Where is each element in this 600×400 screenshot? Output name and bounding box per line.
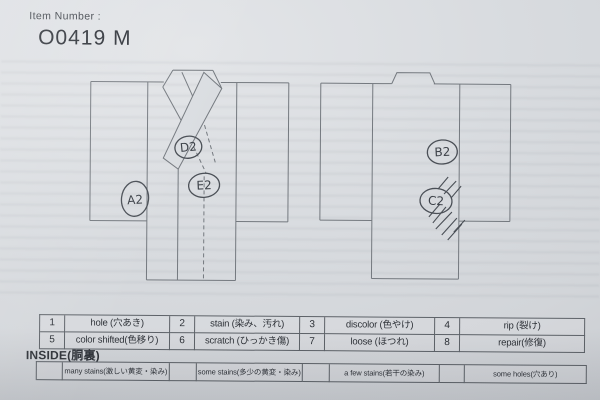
annotation-B2-label: B2: [434, 145, 450, 160]
legend-code-cell: 8: [435, 335, 460, 352]
annotation-C2-label: C2: [428, 194, 445, 209]
annotation-D2-label: D2: [179, 139, 197, 155]
kimono-front-diagram: [89, 70, 288, 281]
legend-label-cell: hole (穴あき): [65, 315, 170, 333]
annotation-C2: C2: [419, 187, 453, 214]
inside-checkbox-cell: [37, 362, 63, 380]
legend-code-cell: 6: [170, 333, 195, 350]
legend-code-cell: 1: [40, 315, 65, 332]
annotation-E2: E2: [187, 172, 221, 199]
inside-checkbox-cell: [440, 365, 465, 383]
legend-code-cell: 4: [435, 318, 460, 335]
annotation-E2-label: E2: [196, 178, 212, 193]
inside-checkbox-cell: [170, 363, 197, 381]
legend-code-cell: 7: [300, 334, 325, 351]
inside-option-label: some holes(穴あり): [465, 365, 587, 384]
damage-hatch-marks: [429, 177, 465, 240]
annotation-A2-label: A2: [127, 192, 144, 207]
defect-legend-table: 1 hole (穴あき) 2 stain (染み、汚れ) 3 discolor …: [39, 314, 585, 353]
inside-checkbox-cell: [303, 364, 330, 382]
inside-option-label: many stains(激しい黄変・染み): [63, 362, 170, 381]
paper-content: Item Number : O0419 M: [0, 0, 600, 400]
legend-code-cell: 2: [170, 316, 195, 333]
legend-label-cell: loose (ほつれ): [325, 334, 435, 352]
legend-label-cell: discolor (色やけ): [325, 317, 435, 335]
legend-label-cell: repair(修復): [460, 335, 585, 353]
inside-option-label: some stains(多少の黄変・染み): [197, 363, 303, 382]
legend-code-cell: 3: [300, 317, 325, 334]
annotation-B2: B2: [426, 139, 458, 166]
legend-label-cell: stain (染み、汚れ): [195, 316, 300, 334]
annotation-A2: A2: [120, 180, 151, 218]
legend-label-cell: rip (裂け): [460, 318, 585, 336]
inside-condition-table: many stains(激しい黄変・染み) some stains(多少の黄変・…: [36, 361, 587, 384]
condition-sheet-photo: Item Number : O0419 M: [0, 0, 600, 400]
legend-label-cell: scratch (ひっかき傷): [195, 333, 300, 351]
kimono-back-diagram: [319, 72, 510, 279]
inside-option-label: a few stains(若干の染み): [330, 364, 440, 383]
